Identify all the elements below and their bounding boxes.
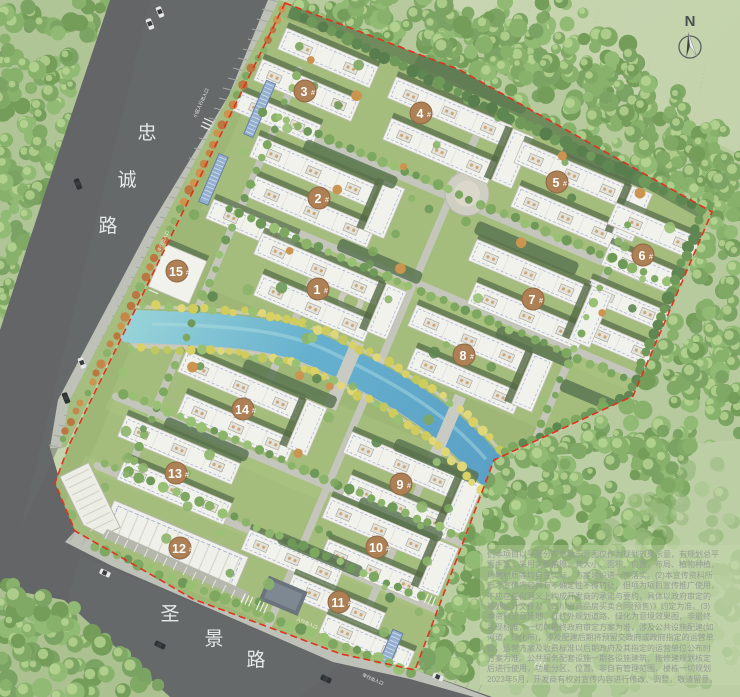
svg-text:#: # (563, 181, 567, 188)
svg-text:规划设计文件及《四川省商品房买卖合同(预售)》约定为准。(3: 规划设计文件及《四川省商品房买卖合同(预售)》约定为准。(3) (487, 601, 710, 611)
svg-text:13: 13 (168, 467, 182, 481)
svg-text:路: 路 (98, 215, 117, 237)
svg-text:#: # (470, 354, 474, 361)
svg-text:#: # (348, 601, 352, 608)
svg-text:#: # (252, 408, 256, 415)
svg-text:#: # (386, 546, 390, 553)
svg-text:们本项目以平面分布鸟瞰示意图仅作为规划效果示意，有规划总平: 们本项目以平面分布鸟瞰示意图仅作为规划效果示意，有规划总平 (487, 549, 719, 559)
svg-text:10: 10 (369, 541, 383, 555)
svg-text:位，运营方案及收费标准以后期政府及其指定的运营单位公布时: 位，运营方案及收费标准以后期政府及其指定的运营单位公布时 (487, 643, 711, 653)
svg-text:1: 1 (314, 283, 321, 297)
svg-text:7: 7 (529, 293, 536, 307)
svg-text:忠: 忠 (137, 122, 156, 144)
svg-text:后进行使用，功能分区、位置、非自有管理范围、楼栋一切规划: 后进行使用，功能分区、位置、非自有管理范围、楼栋一切规划 (487, 663, 711, 673)
svg-text:#: # (539, 298, 543, 305)
svg-text:景: 景 (204, 629, 223, 650)
svg-text:3: 3 (301, 85, 308, 99)
svg-text:#: # (407, 483, 411, 490)
svg-text:方案为准。公共服务配套设施一期各设施建筑，按修建规划核定: 方案为准。公共服务配套设施一期各设施建筑，按修建规划核定 (487, 653, 711, 663)
svg-text:示才宣传内容具有不确定性不得转让，但项为项目宣传推广使用，: 示才宣传内容具有不确定性不得转让，但项为项目宣传推广使用， (487, 580, 719, 590)
svg-text:#: # (185, 472, 189, 479)
svg-text:11: 11 (331, 596, 344, 610)
svg-text:#: # (649, 254, 653, 261)
svg-text:6: 6 (639, 249, 646, 263)
svg-text:15: 15 (169, 265, 183, 279)
svg-text:4: 4 (417, 107, 424, 121)
svg-text:N: N (685, 13, 696, 30)
svg-text:#: # (427, 112, 431, 119)
svg-text:面手法、采用实景拍摄，其大小、面积、位置、布局、植物种植、: 面手法、采用实景拍摄，其大小、面积、位置、布局、植物种植、 (487, 559, 719, 569)
svg-text:呈现标准，一切以最终政府审定方案为准，涉及公共设施配建(如: 呈现标准，一切以最终政府审定方案为准，涉及公共设施配建(如 (487, 622, 714, 632)
svg-text:河道、绿化带)，涉及配建后期将预留交政府或政府指定的运营单: 河道、绿化带)，涉及配建后期将预留交政府或政府指定的运营单 (487, 632, 714, 642)
svg-text:#: # (186, 270, 190, 277)
svg-text:2: 2 (315, 192, 322, 206)
svg-text:场地材质等均自在实际，方案建设进一步落实。(2)本宣传资料所: 场地材质等均自在实际，方案建设进一步落实。(2)本宣传资料所 (487, 570, 713, 580)
svg-text:#: # (325, 197, 329, 204)
svg-text:诚: 诚 (117, 169, 136, 191)
svg-text:本资料示意场地、红线外规划道路、绿化为意境效果图，非最终: 本资料示意场地、红线外规划道路、绿化为意境效果图，非最终 (487, 611, 711, 621)
svg-text:不应在任何意义上构成开发商的承诺与要约，具体以政府审定的: 不应在任何意义上构成开发商的承诺与要约，具体以政府审定的 (487, 591, 711, 601)
svg-text:#: # (324, 288, 328, 295)
svg-text:14: 14 (235, 403, 249, 417)
svg-text:#: # (311, 90, 315, 97)
svg-text:9: 9 (397, 478, 404, 492)
svg-text:#: # (189, 547, 193, 554)
svg-text:5: 5 (553, 176, 560, 190)
svg-text:圣: 圣 (160, 604, 179, 625)
svg-text:路: 路 (246, 649, 265, 671)
svg-text:8: 8 (460, 349, 467, 363)
svg-text:12: 12 (172, 542, 186, 556)
svg-text:2023年5月，开发商有权对宣传内容进行修改、调整，敬请留意: 2023年5月，开发商有权对宣传内容进行修改、调整，敬请留意。 (487, 674, 717, 684)
